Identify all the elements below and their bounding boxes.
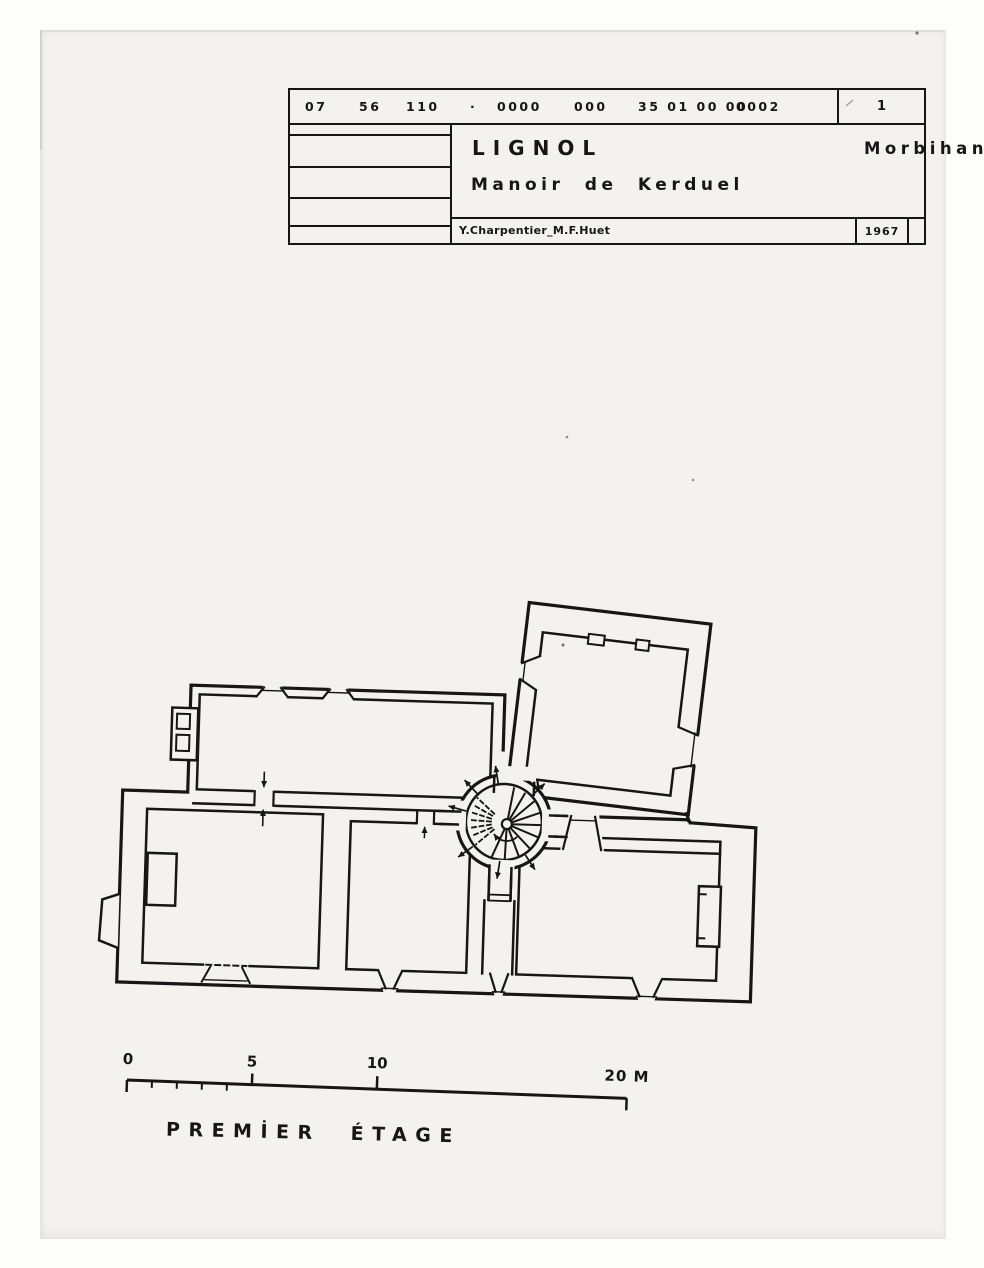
commune-name: LIGNOL bbox=[472, 136, 603, 160]
department-name: Morbihan bbox=[864, 139, 984, 158]
title-block-empty-rows bbox=[290, 123, 452, 243]
code-field-1: 56 bbox=[359, 99, 381, 114]
authors-band: Y.Charpentier_M.F.Huet 1967 bbox=[450, 217, 924, 243]
building-title: Manoir de Kerduel bbox=[471, 175, 744, 195]
code-field-0: 07 bbox=[305, 99, 327, 114]
row-divider bbox=[290, 225, 450, 227]
title-block-main-area: LIGNOL Morbihan Manoir de Kerduel bbox=[452, 123, 924, 221]
row-divider bbox=[290, 166, 450, 168]
code-field-5: 000 bbox=[574, 99, 608, 114]
year-cell: 1967 bbox=[855, 219, 909, 243]
code-field-4: 0000 bbox=[497, 99, 542, 114]
caption-word-etage: ÉTAGE bbox=[350, 1123, 461, 1147]
sheet-top-edge-shadow bbox=[40, 30, 944, 32]
title-block-code-band: 07 56 110 · 0000 000 35 01 00 00 0002 1 bbox=[290, 90, 924, 125]
authors-names: Y.Charpentier_M.F.Huet bbox=[459, 224, 610, 237]
code-field-7: 0002 bbox=[736, 99, 781, 114]
code-field-3: · bbox=[470, 99, 477, 114]
code-field-2: 110 bbox=[406, 99, 440, 114]
caption-word-premier: PREMİER bbox=[166, 1119, 321, 1145]
row-divider bbox=[290, 197, 450, 199]
title-block: 07 56 110 · 0000 000 35 01 00 00 0002 1 … bbox=[288, 88, 926, 245]
sheet-number: 1 bbox=[839, 90, 924, 123]
row-divider bbox=[290, 134, 450, 136]
sheet-left-edge-shadow bbox=[40, 30, 42, 150]
code-field-6: 35 01 00 00 bbox=[638, 99, 748, 114]
